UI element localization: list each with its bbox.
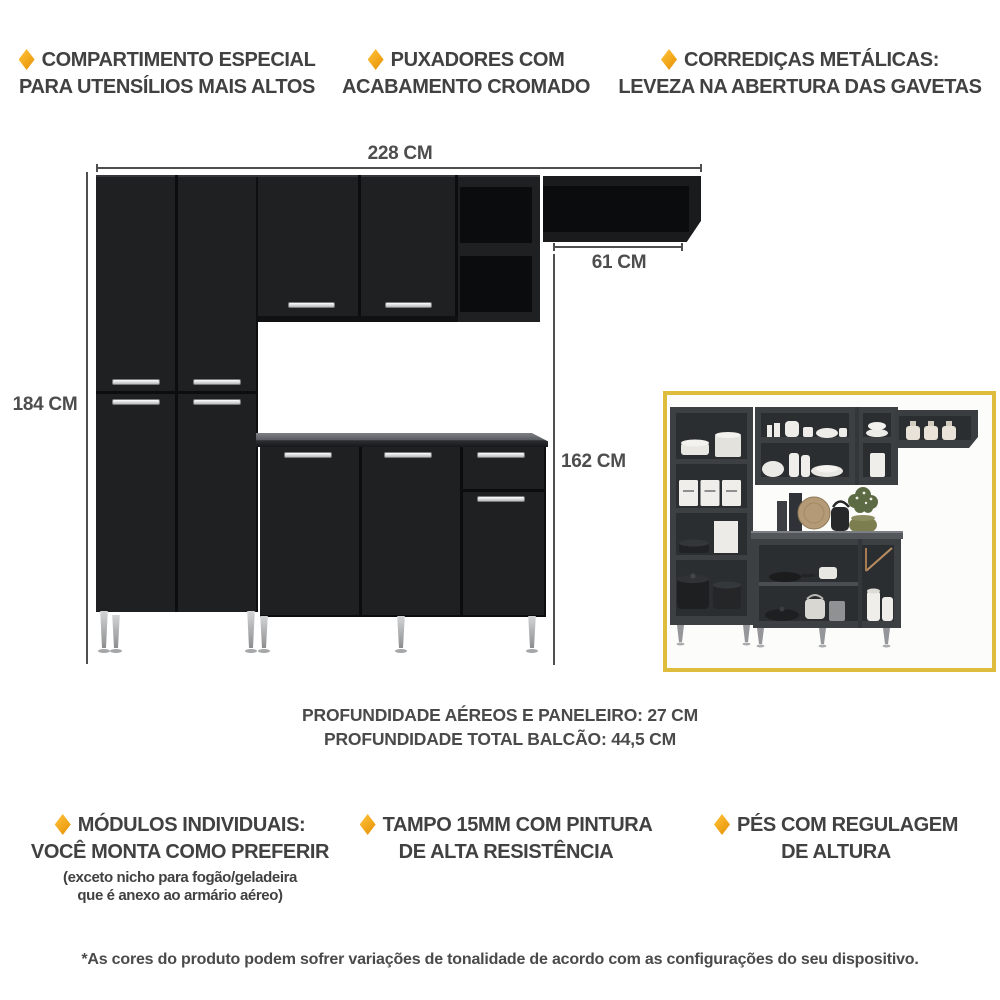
open-niche <box>460 256 532 312</box>
feature-line: COMPARTIMENTO ESPECIAL <box>6 47 328 74</box>
chrome-handle <box>477 496 525 502</box>
feature-line: DE ALTURA <box>688 839 984 866</box>
diamond-bullet-icon <box>714 814 730 835</box>
depth-note-line: PROFUNDIDADE AÉREOS E PANELEIRO: 27 CM <box>0 703 1000 727</box>
drawer-divider <box>463 489 546 492</box>
dim-line-paneleiro-height <box>86 172 88 664</box>
dim-tick <box>96 164 98 172</box>
chrome-handle <box>112 399 160 405</box>
feature-bottom-tampo: TAMPO 15MM COM PINTURA DE ALTA RESISTÊNC… <box>350 812 662 866</box>
feature-line: DE ALTA RESISTÊNCIA <box>350 839 662 866</box>
dim-line-total-width <box>96 167 702 169</box>
dim-label-corner-shelf-width: 61 CM <box>556 252 682 274</box>
feature-line: ACABAMENTO CROMADO <box>336 74 596 101</box>
diamond-bullet-icon <box>55 814 71 835</box>
dim-label-paneleiro-height: 184 CM <box>8 394 82 416</box>
feature-text: TAMPO 15MM COM PINTURA <box>383 814 653 836</box>
feature-top-compartimento: COMPARTIMENTO ESPECIAL PARA UTENSÍLIOS M… <box>6 47 328 101</box>
diamond-bullet-icon <box>19 49 35 70</box>
chrome-handle <box>112 379 160 385</box>
door-divider <box>460 447 463 617</box>
cabinet-leg <box>395 616 407 653</box>
open-niche <box>543 186 689 232</box>
corner-shelf <box>543 176 701 242</box>
feature-line: TAMPO 15MM COM PINTURA <box>350 812 662 839</box>
dim-label-balcao-height: 162 CM <box>561 451 651 473</box>
dim-line-corner-shelf-width <box>553 246 683 248</box>
feature-line: LEVEZA NA ABERTURA DAS GAVETAS <box>616 74 984 101</box>
feature-line: VOCÊ MONTA COMO PREFERIR <box>18 839 342 866</box>
dim-tick <box>700 164 702 172</box>
cabinet-leg <box>110 615 122 653</box>
feature-top-puxadores: PUXADORES COM ACABAMENTO CROMADO <box>336 47 596 101</box>
door-divider <box>455 175 458 322</box>
door-bottom-edge <box>258 316 458 322</box>
base-cabinet <box>260 447 546 617</box>
cabinet-leg <box>526 616 538 653</box>
dim-line-balcao-height <box>553 254 555 665</box>
cabinet-leg <box>258 616 270 653</box>
dim-label-total-width: 228 CM <box>330 143 470 165</box>
wall-cabinet <box>258 175 540 322</box>
feature-line: CORREDIÇAS METÁLICAS: <box>616 47 984 74</box>
depth-notes: PROFUNDIDADE AÉREOS E PANELEIRO: 27 CM P… <box>0 703 1000 751</box>
dim-tick <box>553 243 555 251</box>
feature-line: MÓDULOS INDIVIDUAIS: <box>18 812 342 839</box>
chrome-handle <box>385 302 432 308</box>
paneleiro-cabinet <box>96 175 258 612</box>
feature-text: MÓDULOS INDIVIDUAIS: <box>78 814 306 836</box>
feature-top-corredicas: CORREDIÇAS METÁLICAS: LEVEZA NA ABERTURA… <box>616 47 984 101</box>
feature-line: PARA UTENSÍLIOS MAIS ALTOS <box>6 74 328 101</box>
depth-note-line: PROFUNDIDADE TOTAL BALCÃO: 44,5 CM <box>0 727 1000 751</box>
inset-photo-illustration <box>667 395 992 668</box>
countertop <box>256 433 548 447</box>
feature-text: PÉS COM REGULAGEM <box>737 814 958 836</box>
door-divider <box>359 447 362 617</box>
feature-text: CORREDIÇAS METÁLICAS: <box>684 49 939 71</box>
color-disclaimer: *As cores do produto podem sofrer variaç… <box>0 951 1000 969</box>
feature-text: COMPARTIMENTO ESPECIAL <box>42 49 316 71</box>
chrome-handle <box>193 379 241 385</box>
diamond-bullet-icon <box>368 49 384 70</box>
feature-bottom-modulos: MÓDULOS INDIVIDUAIS: VOCÊ MONTA COMO PRE… <box>18 812 342 905</box>
feature-line: PÉS COM REGULAGEM <box>688 812 984 839</box>
chrome-handle <box>384 452 432 458</box>
feature-bottom-pes: PÉS COM REGULAGEM DE ALTURA <box>688 812 984 866</box>
feature-line: PUXADORES COM <box>336 47 596 74</box>
cabinet-leg <box>245 611 257 653</box>
chrome-handle <box>288 302 335 308</box>
chrome-handle <box>193 399 241 405</box>
feature-note: (exceto nicho para fogão/geladeira <box>18 869 342 887</box>
product-photo-inset <box>663 391 996 672</box>
open-niche <box>460 187 532 243</box>
dim-tick <box>681 243 683 251</box>
feature-text: PUXADORES COM <box>391 49 565 71</box>
chrome-handle <box>477 452 525 458</box>
diamond-bullet-icon <box>661 49 677 70</box>
diamond-bullet-icon <box>360 814 376 835</box>
chrome-handle <box>284 452 332 458</box>
door-divider <box>96 391 258 394</box>
door-divider <box>358 175 361 316</box>
cabinet-leg <box>98 611 110 653</box>
product-infographic: COMPARTIMENTO ESPECIAL PARA UTENSÍLIOS M… <box>0 0 1000 1000</box>
feature-note: que é anexo ao armário aéreo) <box>18 887 342 905</box>
